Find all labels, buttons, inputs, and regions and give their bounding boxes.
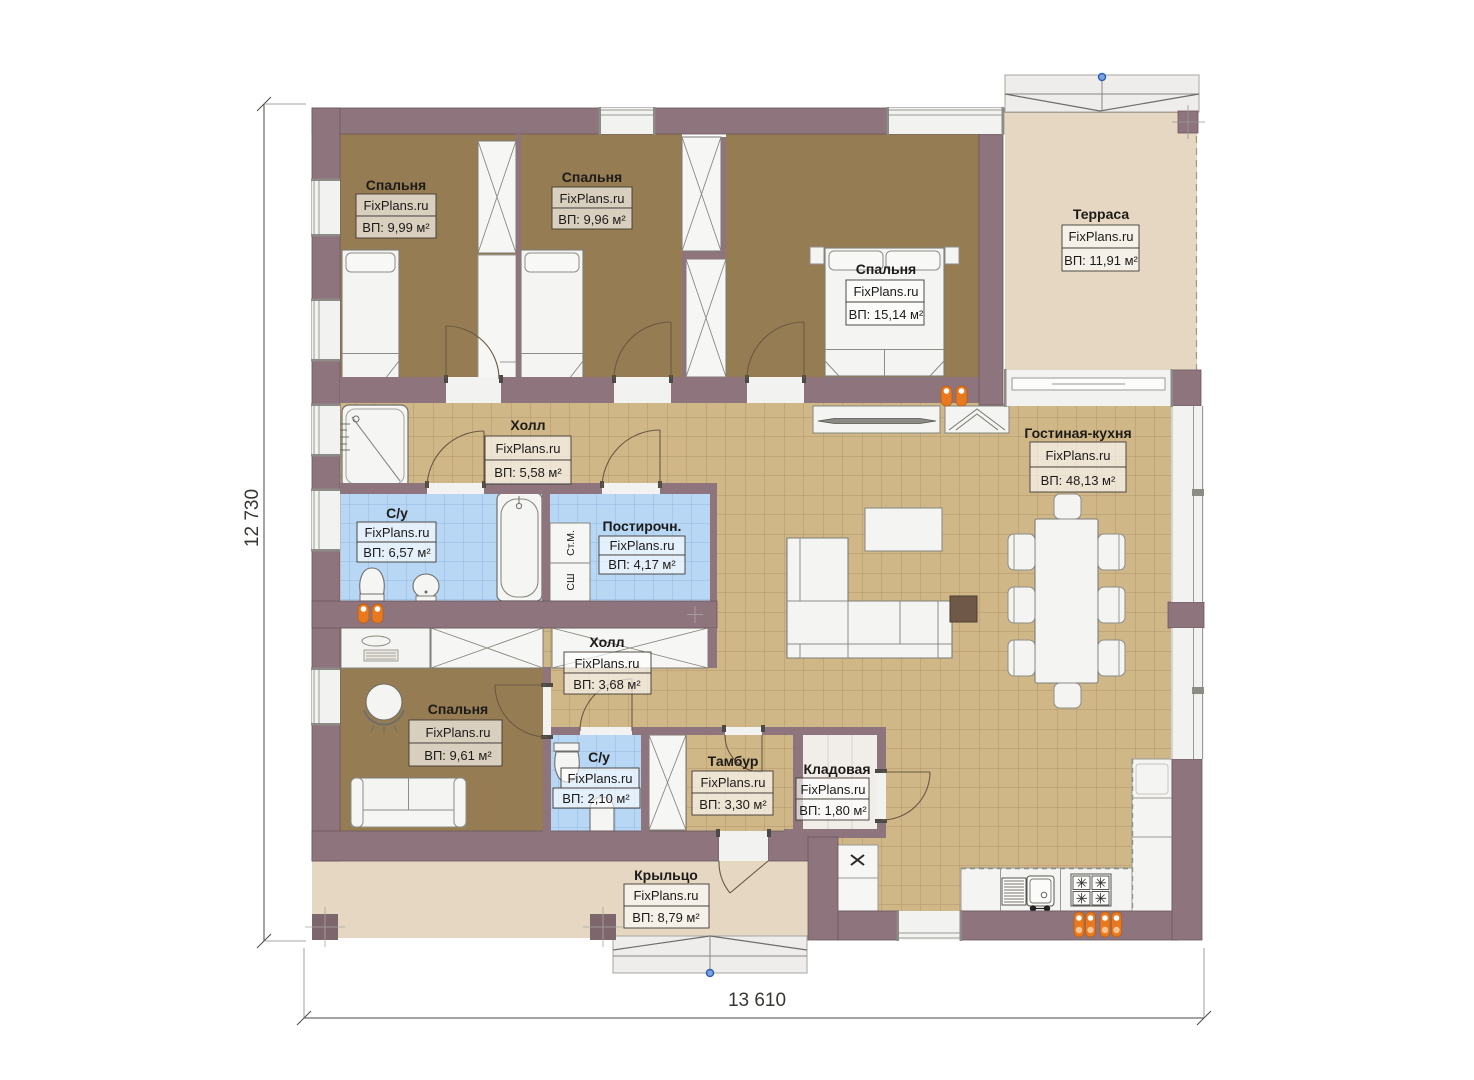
- svg-text:Тамбур: Тамбур: [708, 753, 759, 769]
- svg-text:FixPlans.ru: FixPlans.ru: [800, 782, 865, 797]
- svg-text:FixPlans.ru: FixPlans.ru: [1045, 448, 1110, 463]
- svg-text:ВП: 1,80 м²: ВП: 1,80 м²: [799, 803, 867, 818]
- svg-text:ВП: 5,58 м²: ВП: 5,58 м²: [494, 465, 562, 480]
- svg-text:ВП: 9,99 м²: ВП: 9,99 м²: [362, 220, 430, 235]
- svg-text:FixPlans.ru: FixPlans.ru: [1068, 229, 1133, 244]
- svg-text:FixPlans.ru: FixPlans.ru: [633, 888, 698, 903]
- svg-text:ВП: 9,61 м²: ВП: 9,61 м²: [424, 748, 492, 763]
- svg-text:ВП: 4,17 м²: ВП: 4,17 м²: [608, 557, 676, 572]
- svg-text:Спальня: Спальня: [562, 169, 622, 185]
- svg-text:FixPlans.ru: FixPlans.ru: [495, 441, 560, 456]
- svg-text:FixPlans.ru: FixPlans.ru: [700, 775, 765, 790]
- svg-text:ВП: 2,10 м²: ВП: 2,10 м²: [562, 791, 630, 806]
- svg-text:Кладовая: Кладовая: [803, 761, 870, 777]
- svg-text:Терраса: Терраса: [1073, 206, 1129, 222]
- svg-text:Спальня: Спальня: [428, 701, 488, 717]
- svg-text:Крыльцо: Крыльцо: [634, 867, 698, 883]
- svg-text:FixPlans.ru: FixPlans.ru: [853, 284, 918, 299]
- svg-text:12 730: 12 730: [242, 489, 263, 547]
- svg-text:С/у: С/у: [386, 505, 408, 521]
- svg-text:ВП: 48,13 м²: ВП: 48,13 м²: [1041, 473, 1116, 488]
- svg-text:Спальня: Спальня: [366, 177, 426, 193]
- svg-text:FixPlans.ru: FixPlans.ru: [364, 525, 429, 540]
- svg-text:ВП: 9,96 м²: ВП: 9,96 м²: [558, 212, 626, 227]
- svg-text:FixPlans.ru: FixPlans.ru: [559, 191, 624, 206]
- svg-text:FixPlans.ru: FixPlans.ru: [574, 656, 639, 671]
- svg-text:ВП: 11,91 м²: ВП: 11,91 м²: [1064, 253, 1138, 268]
- svg-text:С/у: С/у: [588, 749, 610, 765]
- svg-text:FixPlans.ru: FixPlans.ru: [363, 198, 428, 213]
- svg-text:Холл: Холл: [510, 417, 545, 433]
- svg-text:ВП: 3,30 м²: ВП: 3,30 м²: [699, 797, 767, 812]
- svg-text:Спальня: Спальня: [856, 261, 916, 277]
- svg-text:ВП: 6,57 м²: ВП: 6,57 м²: [363, 545, 431, 560]
- svg-text:Холл: Холл: [589, 634, 624, 650]
- svg-text:Гостиная-кухня: Гостиная-кухня: [1024, 425, 1131, 441]
- svg-text:FixPlans.ru: FixPlans.ru: [609, 538, 674, 553]
- svg-text:ВП: 15,14 м²: ВП: 15,14 м²: [849, 307, 924, 322]
- svg-text:FixPlans.ru: FixPlans.ru: [425, 725, 490, 740]
- svg-text:СШ: СШ: [565, 573, 577, 590]
- svg-text:ВП: 8,79 м²: ВП: 8,79 м²: [632, 910, 700, 925]
- svg-text:Ст.М.: Ст.М.: [565, 530, 577, 556]
- svg-text:13 610: 13 610: [728, 990, 786, 1011]
- svg-text:FixPlans.ru: FixPlans.ru: [567, 771, 632, 786]
- svg-text:ВП: 3,68 м²: ВП: 3,68 м²: [573, 677, 641, 692]
- svg-text:Постирочн.: Постирочн.: [603, 518, 682, 534]
